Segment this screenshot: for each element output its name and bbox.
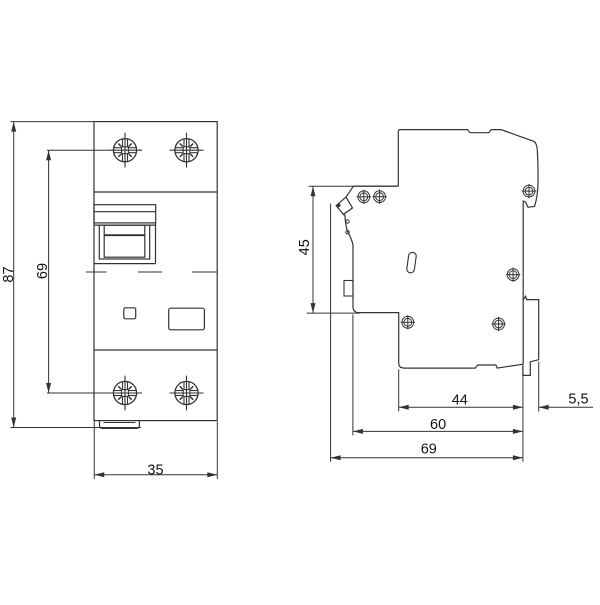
svg-text:44: 44 bbox=[452, 393, 468, 409]
svg-text:69: 69 bbox=[35, 263, 51, 279]
svg-text:35: 35 bbox=[147, 462, 163, 478]
svg-text:45: 45 bbox=[297, 239, 313, 255]
svg-text:60: 60 bbox=[430, 417, 446, 433]
svg-text:87: 87 bbox=[1, 266, 17, 282]
svg-text:69: 69 bbox=[421, 442, 437, 458]
svg-text:5,5: 5,5 bbox=[568, 391, 588, 407]
